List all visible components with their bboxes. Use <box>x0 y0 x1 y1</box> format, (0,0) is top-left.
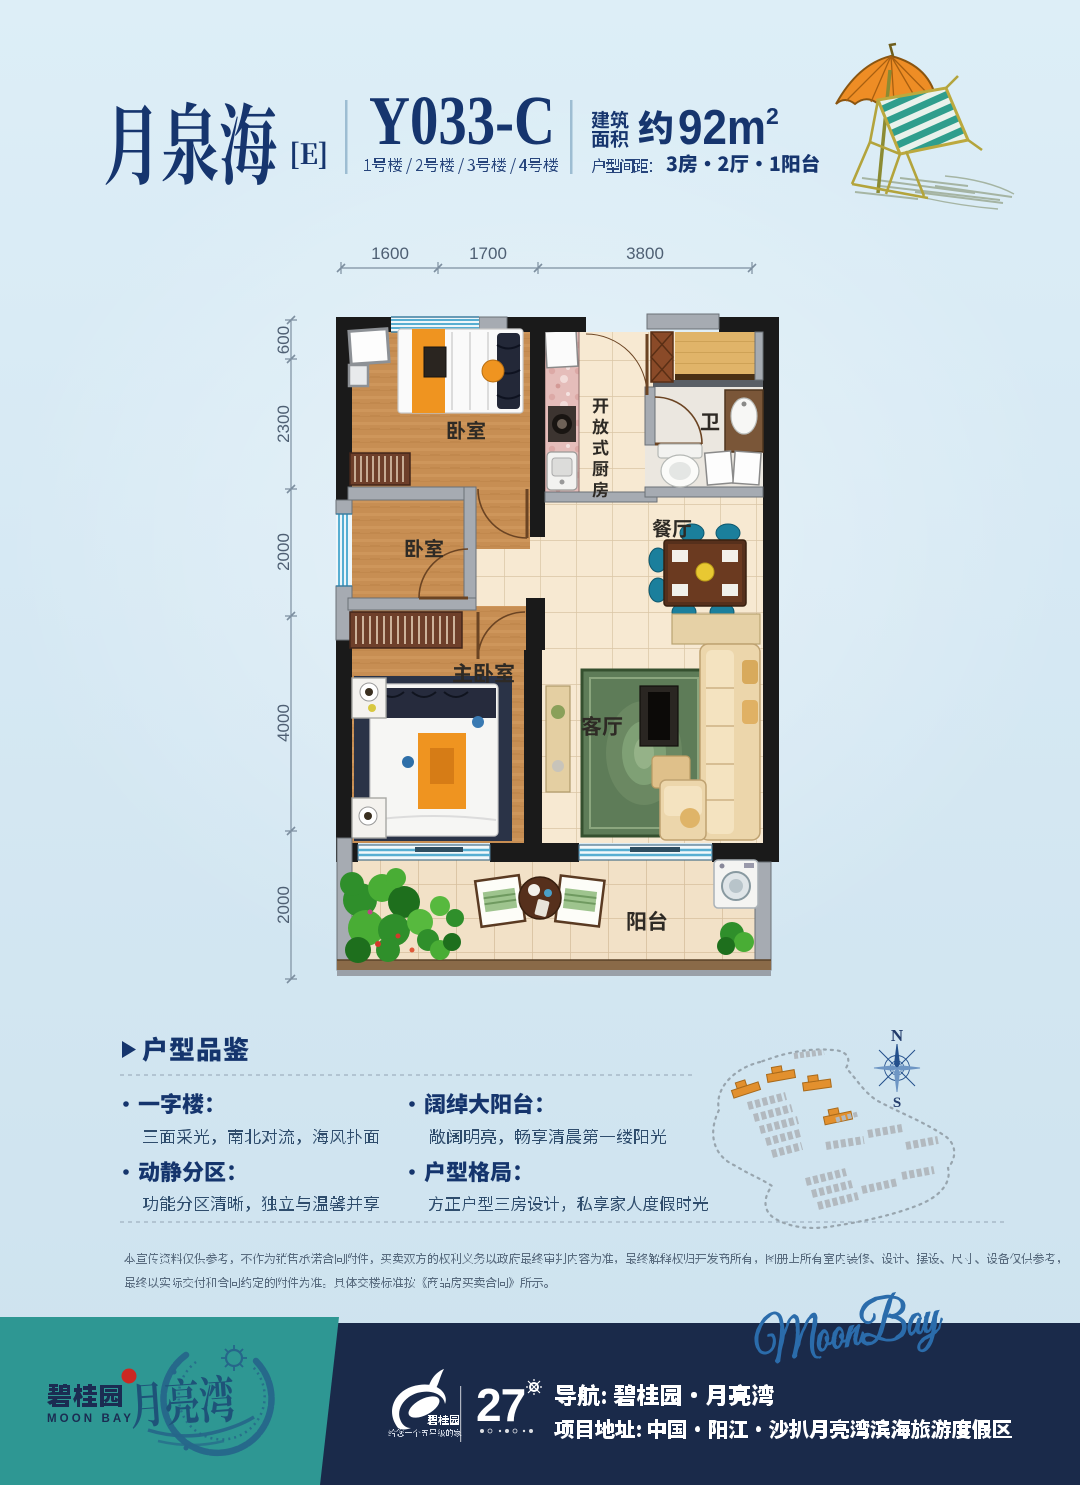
svg-text:3800: 3800 <box>626 244 664 263</box>
svg-text:2000: 2000 <box>274 533 293 571</box>
svg-text:1600: 1600 <box>371 244 409 263</box>
svg-text:MOON BAY: MOON BAY <box>47 1413 134 1425</box>
svg-text:2: 2 <box>766 103 779 129</box>
svg-text:2000: 2000 <box>274 886 293 924</box>
svg-text:1700: 1700 <box>469 244 507 263</box>
svg-text:Y033-C: Y033-C <box>369 83 555 160</box>
svg-text:2300: 2300 <box>274 405 293 443</box>
svg-text:N: N <box>891 1026 904 1045</box>
svg-text:4000: 4000 <box>274 704 293 742</box>
svg-text:92m: 92m <box>678 101 766 155</box>
svg-text:S: S <box>893 1095 901 1111</box>
svg-text:600: 600 <box>274 326 293 354</box>
svg-text:27: 27 <box>476 1379 525 1431</box>
